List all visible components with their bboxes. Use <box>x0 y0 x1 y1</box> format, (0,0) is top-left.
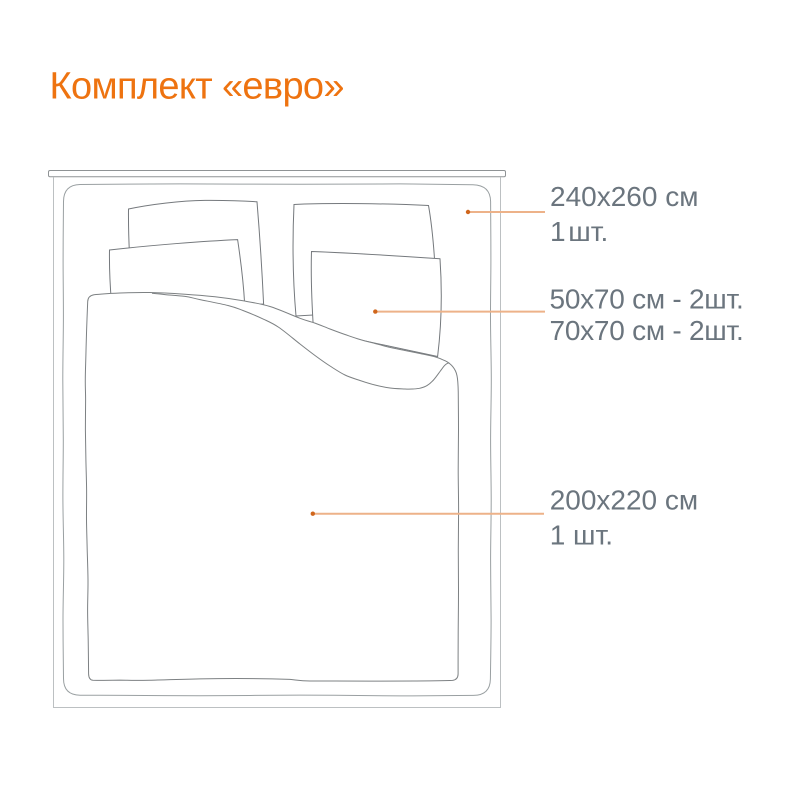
svg-text:1: 1 <box>550 216 566 247</box>
svg-text:240х260 см: 240х260 см <box>550 181 698 212</box>
svg-text:Комплект «евро»: Комплект «евро» <box>50 65 344 107</box>
svg-text:70х70 см - 2шт.: 70х70 см - 2шт. <box>550 315 744 346</box>
svg-text:шт.: шт. <box>568 216 608 247</box>
svg-text:1 шт.: 1 шт. <box>550 520 613 551</box>
svg-text:50х70 см - 2шт.: 50х70 см - 2шт. <box>550 284 744 315</box>
svg-text:200х220 см: 200х220 см <box>550 485 698 516</box>
